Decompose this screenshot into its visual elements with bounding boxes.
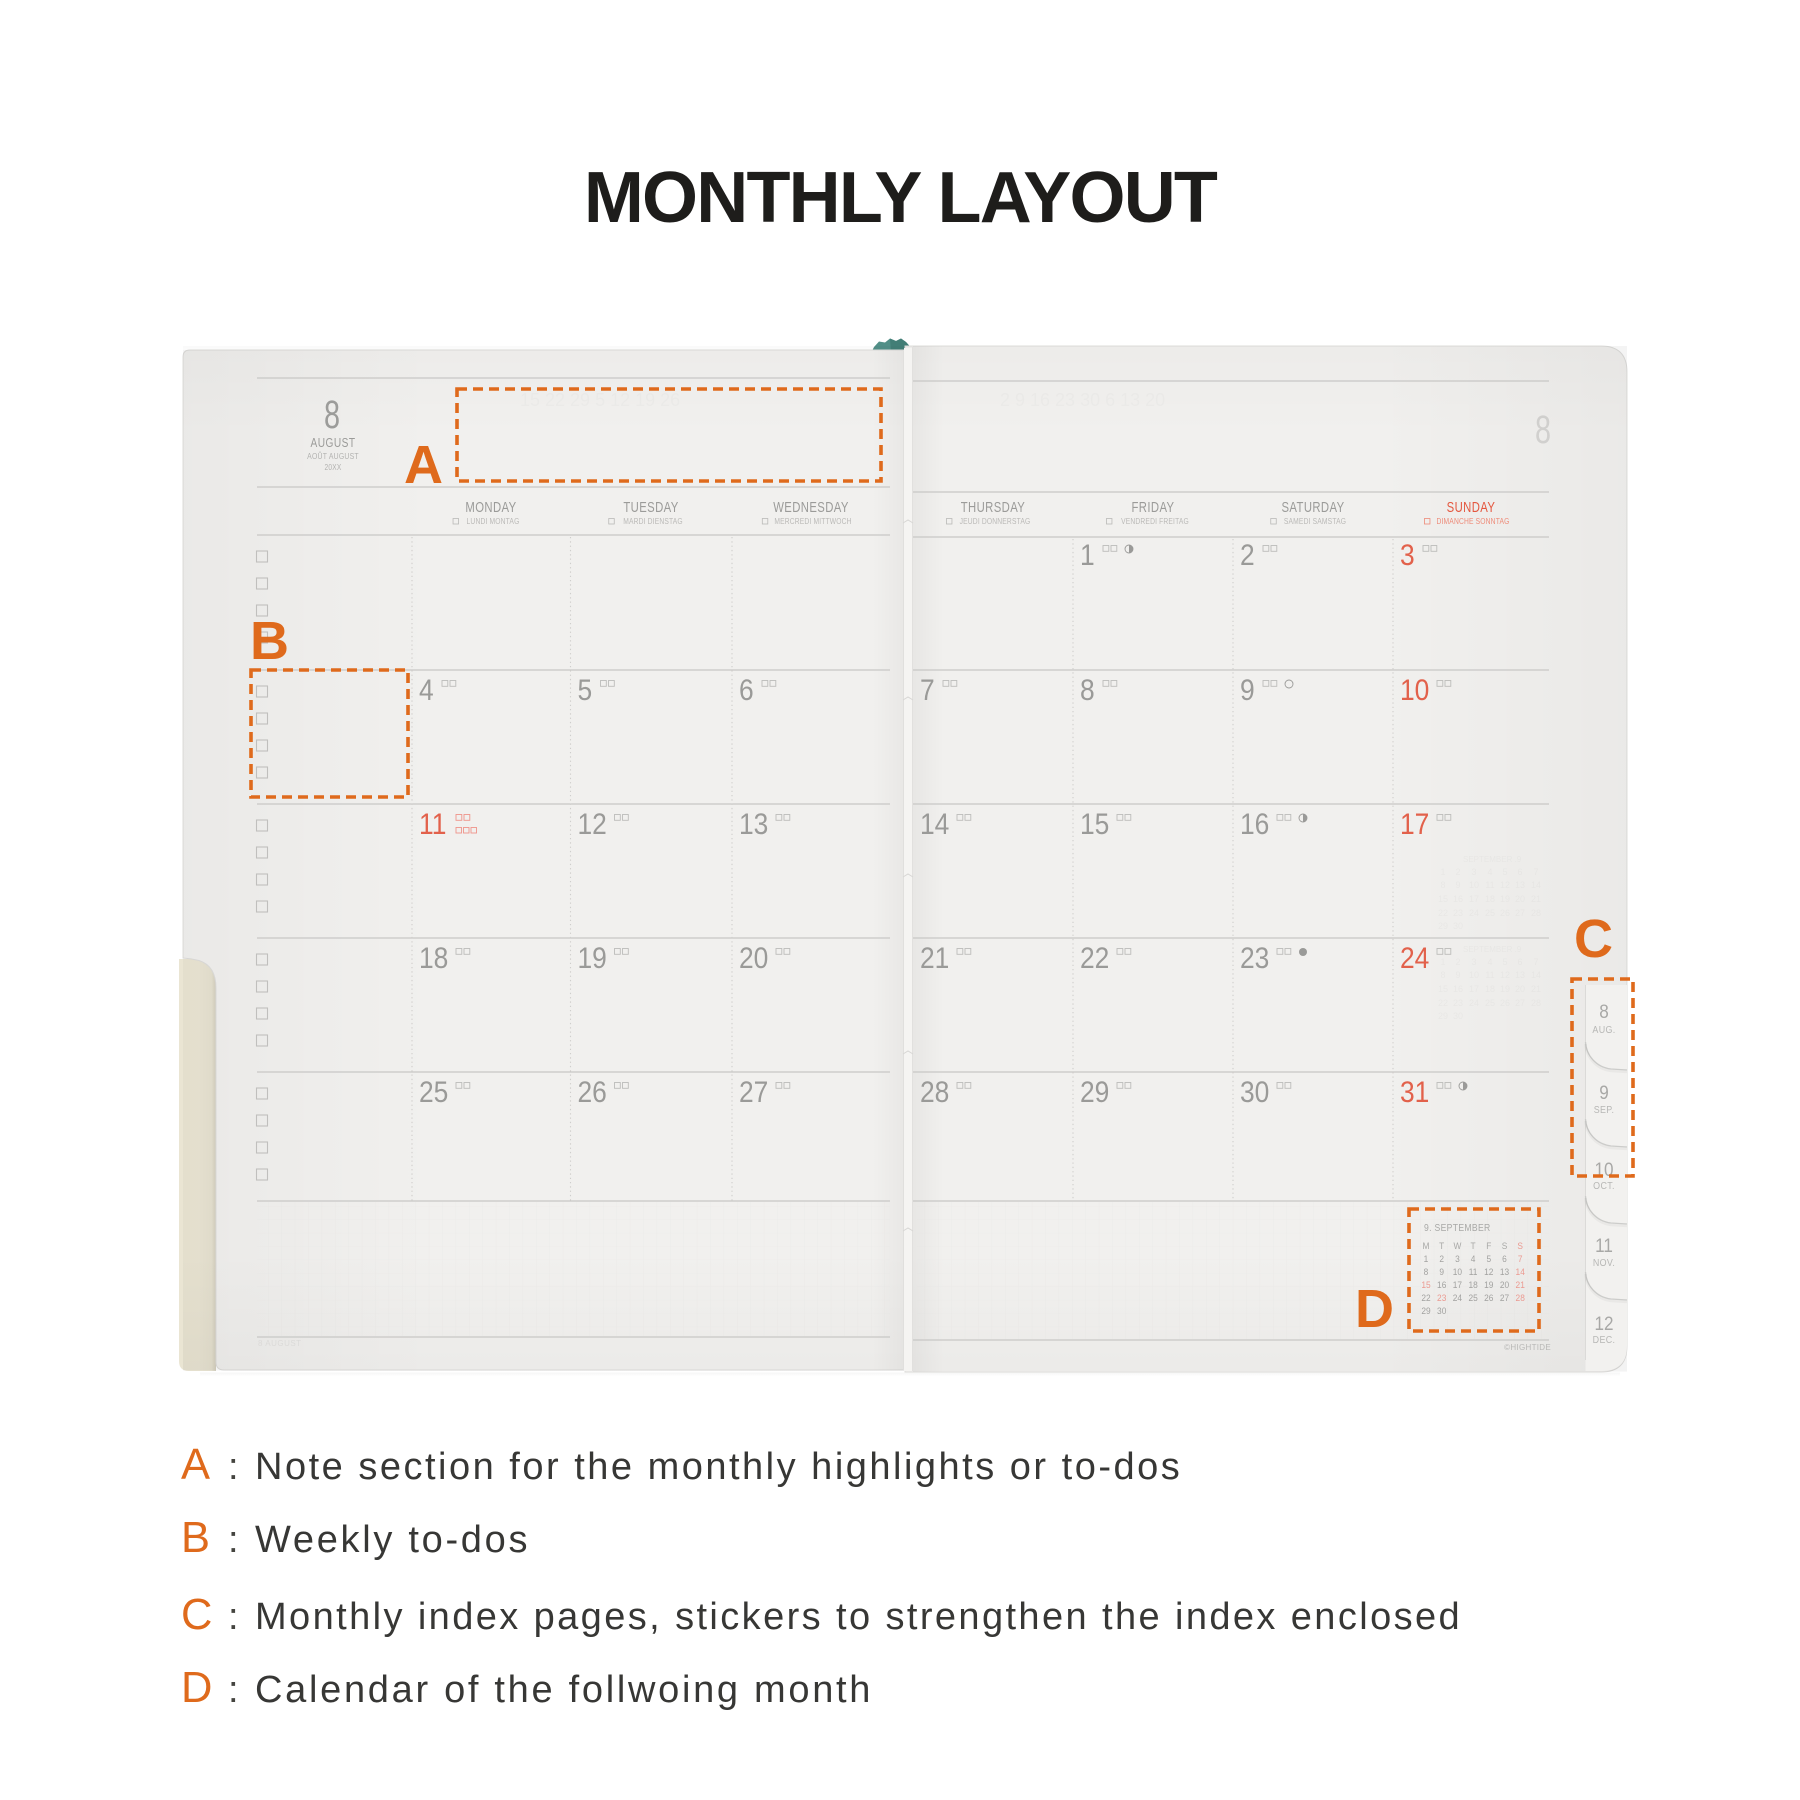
svg-text:20: 20 xyxy=(1515,894,1525,904)
svg-text:8: 8 xyxy=(1424,1267,1429,1278)
svg-text:1: 1 xyxy=(1080,537,1095,571)
svg-text:2 9 16 23 30 6 13: 2 9 16 23 30 6 13 20 xyxy=(1000,390,1165,410)
svg-text:THURSDAY: THURSDAY xyxy=(961,499,1025,516)
svg-text:15: 15 xyxy=(1438,894,1448,904)
svg-text:29: 29 xyxy=(1421,1306,1430,1317)
svg-text:12: 12 xyxy=(1500,880,1510,890)
svg-text:SEPTEMBER .9: SEPTEMBER .9 xyxy=(1463,945,1522,954)
svg-text:1: 1 xyxy=(1440,957,1445,967)
svg-text:B: B xyxy=(250,611,289,671)
svg-text:9. SEPTEMBER: 9. SEPTEMBER xyxy=(1424,1222,1491,1234)
svg-text:8: 8 xyxy=(1440,970,1445,980)
svg-text:29: 29 xyxy=(1438,921,1448,931)
svg-text:MARDI DIENSTAG: MARDI DIENSTAG xyxy=(623,516,683,526)
svg-text:16: 16 xyxy=(1437,1280,1446,1291)
svg-text:24: 24 xyxy=(1469,998,1479,1008)
svg-text:5: 5 xyxy=(578,672,593,706)
svg-text:AUG.: AUG. xyxy=(1592,1024,1615,1036)
svg-text:22: 22 xyxy=(1421,1293,1430,1304)
svg-text:5: 5 xyxy=(1502,867,1507,877)
svg-text:10: 10 xyxy=(1469,880,1479,890)
svg-text:T: T xyxy=(1439,1241,1445,1252)
svg-text:3: 3 xyxy=(1471,867,1476,877)
svg-text:28: 28 xyxy=(1516,1293,1525,1304)
svg-text:20XX: 20XX xyxy=(325,462,342,472)
svg-text:9: 9 xyxy=(1455,880,1460,890)
svg-text:8: 8 xyxy=(1080,672,1095,706)
svg-text:24: 24 xyxy=(1400,940,1429,974)
svg-text:W: W xyxy=(1453,1241,1461,1252)
svg-text:10: 10 xyxy=(1453,1267,1462,1278)
svg-text:MERCREDI MITTWOCH: MERCREDI MITTWOCH xyxy=(774,516,851,526)
svg-text:14: 14 xyxy=(1531,880,1541,890)
svg-text:18: 18 xyxy=(1485,894,1495,904)
svg-text:26: 26 xyxy=(1500,908,1510,918)
svg-text:10: 10 xyxy=(1469,970,1479,980)
svg-text:17: 17 xyxy=(1453,1280,1462,1291)
svg-text:11: 11 xyxy=(1595,1235,1613,1256)
svg-text:29: 29 xyxy=(1438,1011,1448,1021)
svg-text:18: 18 xyxy=(419,940,448,974)
svg-text:19: 19 xyxy=(1484,1280,1493,1291)
svg-text:26: 26 xyxy=(1500,998,1510,1008)
svg-text:13: 13 xyxy=(1515,970,1525,980)
svg-text:DEC.: DEC. xyxy=(1593,1334,1616,1346)
svg-text:8: 8 xyxy=(1535,407,1551,452)
svg-text:22: 22 xyxy=(1438,908,1448,918)
svg-text:22: 22 xyxy=(1080,940,1109,974)
svg-text:12: 12 xyxy=(1484,1267,1493,1278)
svg-text:20: 20 xyxy=(1500,1280,1509,1291)
svg-text:27: 27 xyxy=(1500,1293,1509,1304)
svg-text:D: D xyxy=(1355,1279,1394,1339)
svg-text:15: 15 xyxy=(1438,984,1448,994)
svg-text:SUNDAY: SUNDAY xyxy=(1447,499,1496,516)
svg-text:FRIDAY: FRIDAY xyxy=(1132,499,1175,516)
svg-text:8: 8 xyxy=(324,392,340,437)
svg-text:28: 28 xyxy=(920,1074,949,1108)
svg-text:18: 18 xyxy=(1468,1280,1477,1291)
svg-text:20: 20 xyxy=(739,940,768,974)
svg-text:19: 19 xyxy=(578,940,607,974)
svg-text:2: 2 xyxy=(1439,1254,1444,1265)
svg-text:6: 6 xyxy=(739,672,754,706)
svg-text:2: 2 xyxy=(1455,867,1460,877)
svg-text:1: 1 xyxy=(1424,1254,1429,1265)
svg-text:23: 23 xyxy=(1437,1293,1446,1304)
svg-text:14: 14 xyxy=(920,806,949,840)
svg-text:17: 17 xyxy=(1400,806,1429,840)
svg-text:12: 12 xyxy=(1500,970,1510,980)
svg-text:28: 28 xyxy=(1531,998,1541,1008)
svg-text:OCT.: OCT. xyxy=(1593,1180,1615,1192)
svg-text:DIMANCHE SONNTAG: DIMANCHE SONNTAG xyxy=(1437,516,1510,526)
svg-text:18: 18 xyxy=(1485,984,1495,994)
svg-text:T: T xyxy=(1471,1241,1477,1252)
svg-text:17: 17 xyxy=(1469,984,1479,994)
svg-text:A: A xyxy=(404,435,443,495)
svg-text:15: 15 xyxy=(1080,806,1109,840)
svg-text:2: 2 xyxy=(1240,537,1255,571)
svg-text:19: 19 xyxy=(1500,984,1510,994)
svg-text:13: 13 xyxy=(1515,880,1525,890)
svg-text:7: 7 xyxy=(1533,957,1538,967)
svg-text:27: 27 xyxy=(1515,998,1525,1008)
svg-text:7: 7 xyxy=(1533,867,1538,877)
svg-text:23: 23 xyxy=(1240,940,1269,974)
svg-text:15: 15 xyxy=(1421,1280,1430,1291)
svg-text:TUESDAY: TUESDAY xyxy=(623,499,678,516)
svg-text:30: 30 xyxy=(1453,921,1463,931)
svg-text:8 AUGUST: 8 AUGUST xyxy=(258,1339,302,1348)
svg-text:3: 3 xyxy=(1471,957,1476,967)
svg-text:11: 11 xyxy=(419,806,446,840)
svg-text:5: 5 xyxy=(1486,1254,1491,1265)
svg-text:LUNDI MONTAG: LUNDI MONTAG xyxy=(467,516,520,526)
svg-text:5: 5 xyxy=(1502,957,1507,967)
svg-text:9: 9 xyxy=(1240,672,1255,706)
svg-text:15 22 29 5 12 19 26: 15 22 29 5 12 19 26 xyxy=(520,390,680,410)
svg-text:4: 4 xyxy=(1471,1254,1476,1265)
svg-text:31: 31 xyxy=(1400,1074,1429,1108)
svg-text:26: 26 xyxy=(578,1074,607,1108)
svg-text:WEDNESDAY: WEDNESDAY xyxy=(773,499,849,516)
svg-text:23: 23 xyxy=(1453,998,1463,1008)
svg-text:17: 17 xyxy=(1469,894,1479,904)
svg-text:4: 4 xyxy=(1487,957,1492,967)
svg-text:24: 24 xyxy=(1453,1293,1462,1304)
svg-text:19: 19 xyxy=(1500,894,1510,904)
svg-text:AOÛT AUGUST: AOÛT AUGUST xyxy=(307,451,359,461)
svg-text:S: S xyxy=(1517,1241,1523,1252)
svg-text:14: 14 xyxy=(1531,970,1541,980)
svg-text:11: 11 xyxy=(1469,1267,1478,1278)
svg-text:9: 9 xyxy=(1599,1082,1609,1103)
svg-text:30: 30 xyxy=(1437,1306,1446,1317)
svg-text:©HIGHTIDE: ©HIGHTIDE xyxy=(1504,1343,1551,1352)
svg-text:25: 25 xyxy=(1468,1293,1477,1304)
svg-text:SEP.: SEP. xyxy=(1594,1104,1615,1116)
svg-text:3: 3 xyxy=(1400,537,1415,571)
svg-text:27: 27 xyxy=(739,1074,768,1108)
svg-text:12: 12 xyxy=(1594,1313,1613,1334)
svg-text:7: 7 xyxy=(1518,1254,1523,1265)
svg-text:6: 6 xyxy=(1502,1254,1507,1265)
svg-text:7: 7 xyxy=(920,672,935,706)
svg-text:C: C xyxy=(1574,909,1613,969)
svg-text:25: 25 xyxy=(1485,998,1495,1008)
svg-text:S: S xyxy=(1502,1241,1508,1252)
svg-text:14: 14 xyxy=(1516,1267,1525,1278)
svg-text:12: 12 xyxy=(578,806,607,840)
svg-text:4: 4 xyxy=(419,672,434,706)
svg-text:11: 11 xyxy=(1485,970,1494,980)
svg-text:29: 29 xyxy=(1080,1074,1109,1108)
svg-text:13: 13 xyxy=(1500,1267,1509,1278)
svg-text:3: 3 xyxy=(1455,1254,1460,1265)
svg-text:MONDAY: MONDAY xyxy=(465,499,516,516)
svg-text:SATURDAY: SATURDAY xyxy=(1281,499,1344,516)
svg-text:25: 25 xyxy=(1485,908,1495,918)
svg-text:23: 23 xyxy=(1453,908,1463,918)
svg-text:28: 28 xyxy=(1531,908,1541,918)
svg-text:6: 6 xyxy=(1517,957,1522,967)
svg-text:9: 9 xyxy=(1439,1267,1444,1278)
svg-text:SEPTEMBER .9: SEPTEMBER .9 xyxy=(1463,855,1522,864)
svg-text:27: 27 xyxy=(1515,908,1525,918)
svg-text:1: 1 xyxy=(1440,867,1445,877)
svg-text:16: 16 xyxy=(1453,984,1463,994)
svg-text:10: 10 xyxy=(1400,672,1429,706)
svg-text:NOV.: NOV. xyxy=(1593,1257,1615,1269)
svg-text:20: 20 xyxy=(1515,984,1525,994)
svg-text:M: M xyxy=(1423,1241,1430,1252)
svg-text:6: 6 xyxy=(1517,867,1522,877)
svg-text:11: 11 xyxy=(1485,880,1494,890)
svg-text:4: 4 xyxy=(1487,867,1492,877)
svg-text:16: 16 xyxy=(1453,894,1463,904)
svg-text:F: F xyxy=(1486,1241,1492,1252)
svg-text:21: 21 xyxy=(1516,1280,1525,1291)
svg-text:30: 30 xyxy=(1453,1011,1463,1021)
svg-text:30: 30 xyxy=(1240,1074,1269,1108)
svg-text:2: 2 xyxy=(1455,957,1460,967)
svg-text:21: 21 xyxy=(920,940,949,974)
svg-text:13: 13 xyxy=(739,806,768,840)
svg-text:AUGUST: AUGUST xyxy=(310,436,355,450)
svg-text:16: 16 xyxy=(1240,806,1269,840)
svg-text:25: 25 xyxy=(419,1074,448,1108)
svg-text:26: 26 xyxy=(1484,1293,1493,1304)
svg-text:24: 24 xyxy=(1469,908,1479,918)
svg-text:21: 21 xyxy=(1531,984,1541,994)
svg-text:8: 8 xyxy=(1440,880,1445,890)
svg-text:21: 21 xyxy=(1531,894,1541,904)
svg-text:SAMEDI SAMSTAG: SAMEDI SAMSTAG xyxy=(1284,516,1346,526)
svg-text:22: 22 xyxy=(1438,998,1448,1008)
svg-text:VENDREDI FREITAG: VENDREDI FREITAG xyxy=(1121,516,1189,526)
svg-text:JEUDI DONNERSTAG: JEUDI DONNERSTAG xyxy=(960,516,1031,526)
svg-text:9: 9 xyxy=(1455,970,1460,980)
svg-text:8: 8 xyxy=(1599,1001,1609,1022)
